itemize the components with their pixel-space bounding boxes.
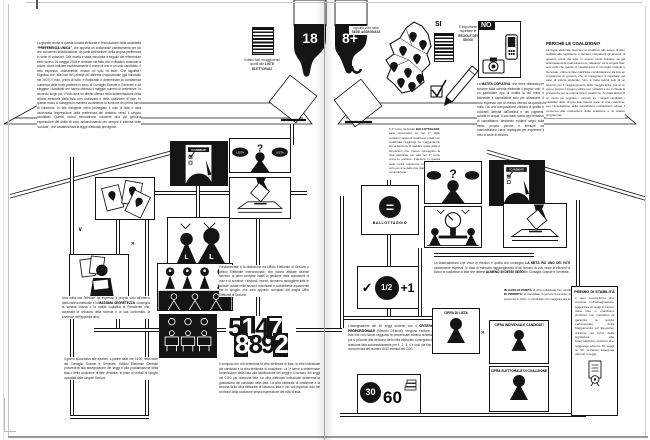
electoral-register-icon bbox=[252, 27, 274, 55]
stability-bonus-text: è quel meccanismo che consiste nell'asse… bbox=[572, 294, 617, 359]
pawn-icon bbox=[444, 317, 468, 343]
scrutiny-desks-icon bbox=[160, 315, 216, 357]
camera-icon bbox=[482, 56, 506, 74]
ballot-drop-box bbox=[229, 177, 291, 219]
page-edge-left bbox=[8, 4, 9, 436]
coalition-figure-box: CIFRA ELETTORALE DI COALIZIONE bbox=[489, 366, 549, 412]
majority-formula-box: ✓ 1/2 +1 bbox=[357, 266, 419, 309]
corner-mark-bottom-left bbox=[4, 398, 5, 432]
vote-count-collage: 5 1 4 7 8 8 9 2 bbox=[226, 316, 296, 360]
no-box: NO bbox=[478, 21, 521, 78]
no-label: NO bbox=[478, 21, 495, 30]
pawn-icon bbox=[506, 374, 532, 400]
urn-icon bbox=[504, 204, 566, 247]
seats-won-circle: 30 bbox=[360, 382, 381, 403]
question-mark: ? bbox=[449, 167, 457, 181]
si-label: SI bbox=[435, 21, 442, 28]
two-options-icon: ? bbox=[425, 162, 481, 203]
coalitions-title: PERCHÉ LE COALIZIONI? bbox=[546, 41, 600, 46]
coalition-figure-label: CIFRA ELETTORALE DI COALIZIONE bbox=[490, 367, 548, 373]
count-digit: 9 bbox=[261, 333, 273, 356]
list-figure-label: CIFRA DI LISTA bbox=[433, 309, 479, 315]
ballots-with-pins-icon bbox=[96, 178, 154, 219]
individual-figure-label: CIFRA INDIVIDUALE CANDIDATI bbox=[490, 321, 548, 327]
voters-caption: Votano tutti i maggiorenni iscritti alle… bbox=[241, 58, 283, 71]
decree-scroll-icon bbox=[585, 360, 605, 386]
equals-icon: = bbox=[379, 196, 401, 218]
pipe bbox=[196, 186, 200, 217]
runoff-choice-box: ? bbox=[424, 161, 482, 204]
secrecy-paragraph: Una volta che l'elettore ha espresso il … bbox=[62, 296, 150, 319]
list-figure-box: CIFRA DI LISTA bbox=[432, 308, 480, 354]
seats-box: 30 60 bbox=[357, 374, 421, 414]
half-circle: 1/2 bbox=[375, 276, 399, 300]
majority-rule-paragraph: La lista/coalizione che vince le elezion… bbox=[434, 261, 570, 275]
lists-box: L L bbox=[167, 217, 230, 264]
count-paragraph: Il computo dei voti determina la cifra e… bbox=[219, 362, 320, 394]
scale-icon bbox=[425, 207, 481, 247]
urn-icon bbox=[230, 178, 290, 218]
equals-glyph: = bbox=[386, 199, 394, 215]
pipe bbox=[434, 253, 534, 257]
voting-booth-icon: I CANDIDATI bbox=[171, 142, 227, 185]
proportional-paragraph: L'assegnazione dei 60 seggi avviene con … bbox=[348, 324, 434, 352]
count-digit: 8 bbox=[234, 333, 248, 356]
page-edge-right bbox=[645, 6, 646, 436]
pipe bbox=[94, 328, 342, 332]
ballot-header-label: I CANDIDATI bbox=[509, 169, 524, 172]
rules-document-icon bbox=[434, 33, 454, 62]
gutter-line bbox=[324, 0, 325, 440]
phone-icon bbox=[505, 34, 518, 60]
pipe bbox=[70, 415, 149, 419]
check-icon: ✓ bbox=[362, 280, 373, 296]
intro-paragraph: La grande novità di questa tornata elett… bbox=[37, 41, 141, 129]
pencil-paragraph: La MATITA COPIATIVA, che viene utilizzat… bbox=[477, 82, 544, 138]
corner-mark-bottom-left-h bbox=[4, 431, 16, 432]
hand-right-icon: 8+ bbox=[331, 0, 373, 84]
two-lists-icon: L L bbox=[168, 218, 229, 263]
pipe bbox=[340, 316, 432, 320]
choice-box: LISTA LISTA ? bbox=[229, 138, 291, 173]
count-digit: 2 bbox=[273, 333, 287, 356]
map-caption: ognuno vota nella SEDE ASSEGNATA bbox=[349, 26, 383, 35]
ballot-header-label: I CANDIDATI bbox=[191, 148, 207, 152]
page-edge-top bbox=[26, 2, 642, 3]
gutter-shade bbox=[316, 0, 334, 440]
ballot-courier-icon bbox=[70, 255, 128, 300]
scrutiny-box bbox=[159, 314, 217, 358]
courier-box bbox=[69, 254, 129, 301]
pipe bbox=[340, 196, 344, 328]
ballot-drop-box-2 bbox=[503, 203, 567, 248]
seat-stack-icon bbox=[404, 379, 418, 391]
voting-booth-box-2: I CANDIDATI bbox=[489, 160, 545, 206]
chevron-down-icon: ∨ bbox=[78, 226, 82, 233]
pencil-checkbox-icon bbox=[428, 64, 480, 108]
list-letter-big: L bbox=[209, 252, 214, 261]
runoff-label: BALLOTTAGGIO bbox=[373, 221, 407, 225]
weighing-box bbox=[424, 206, 482, 248]
list-letter-small: L bbox=[184, 254, 188, 261]
magazine-spread: La grande novità di questa tornata elett… bbox=[0, 0, 650, 440]
individual-figure-box: CIFRA INDIVIDUALE CANDIDATI bbox=[489, 320, 549, 364]
half-fraction: 1/2 bbox=[381, 283, 392, 292]
ballots-box bbox=[95, 177, 155, 220]
plus-one: +1 bbox=[401, 281, 415, 295]
pawn-icon bbox=[509, 329, 529, 351]
count-digit: 8 bbox=[248, 333, 260, 356]
voter-question-icon: LISTA LISTA ? bbox=[230, 139, 290, 172]
day-after-paragraph: Il giorno successivo alle elezioni, a pa… bbox=[64, 357, 158, 380]
voting-booth-box: I CANDIDATI bbox=[170, 141, 228, 186]
chevron-right-icon: » bbox=[481, 330, 484, 336]
list-pill-left-label: LISTA bbox=[236, 151, 244, 155]
corner-tick bbox=[36, 0, 38, 9]
seats-won: 30 bbox=[366, 387, 376, 397]
san-marino-map-icon bbox=[384, 20, 434, 98]
voting-booth-icon: I CANDIDATI bbox=[490, 161, 544, 205]
chevron-right-icon: » bbox=[131, 241, 134, 247]
offices-paragraph: Fondamentale è la distinzione tra Uffici… bbox=[219, 265, 309, 297]
page-edge-left-outer bbox=[3, 0, 4, 440]
list-pill-right-label: LISTA bbox=[276, 151, 284, 155]
stability-bonus-panel: PREMIO DI STABILITÀ è quel meccanismo ch… bbox=[571, 286, 618, 416]
runoff-box: = BALLOTTAGGIO bbox=[361, 185, 419, 235]
stability-bonus-title: PREMIO DI STABILITÀ bbox=[572, 287, 617, 294]
pipe bbox=[576, 200, 580, 286]
seats-total: 60 bbox=[383, 388, 402, 408]
coalitions-paragraph: La legge elettorale favorisce le coalizi… bbox=[546, 48, 625, 118]
